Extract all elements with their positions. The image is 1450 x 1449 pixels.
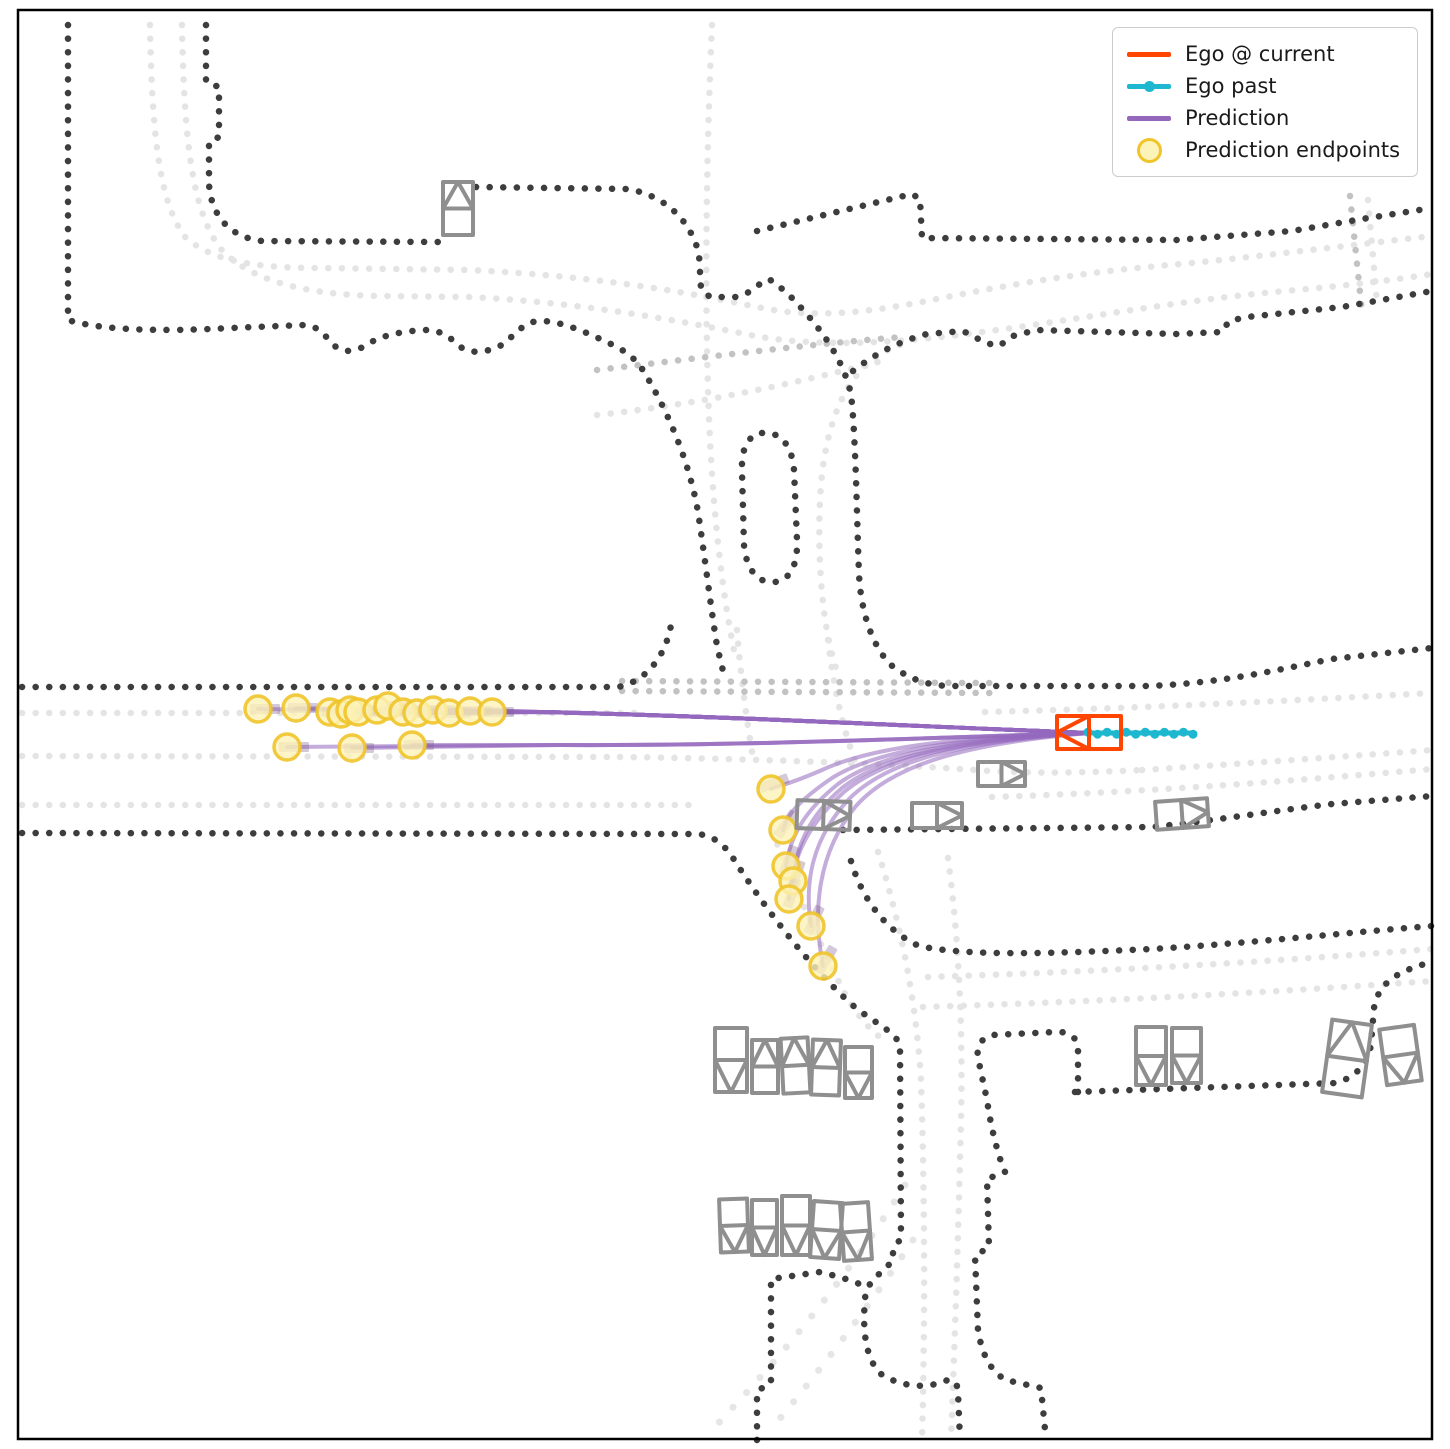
- vehicle-glyph: [811, 1040, 841, 1096]
- vehicle-heading-icon: [842, 1231, 872, 1261]
- road-lane-line: [706, 25, 736, 660]
- ego-past-dot: [1189, 730, 1198, 739]
- prediction-endpoint: [810, 953, 836, 979]
- ego-past-dot: [1141, 728, 1150, 737]
- vehicle-glyph: [781, 1037, 811, 1093]
- vehicle-glyph: [840, 1202, 872, 1261]
- vehicle-glyph: [719, 1199, 749, 1253]
- ego-past-dot: [1169, 730, 1178, 739]
- legend-item-prediction-endpoints: Prediction endpoints: [1127, 134, 1403, 166]
- ego-past-dot: [1179, 728, 1188, 737]
- prediction-endpoint: [245, 696, 271, 722]
- vehicle-heading-icon: [937, 803, 962, 828]
- prediction-path: [818, 733, 1090, 966]
- vehicle-glyph: [810, 1201, 843, 1259]
- prediction-swatch-icon: [1127, 116, 1171, 121]
- road-boundary: [853, 291, 1432, 371]
- road-guide-line: [1350, 196, 1362, 312]
- vehicle-heading-icon: [752, 1040, 778, 1067]
- prediction-endpoint: [798, 913, 824, 939]
- road-boundary: [22, 625, 671, 687]
- ego-past-dot: [1093, 730, 1102, 739]
- vehicle-glyph: [845, 1047, 872, 1098]
- road-guide-line: [622, 681, 990, 683]
- vehicle-heading-icon: [781, 1037, 809, 1066]
- vehicle-glyph: [443, 182, 473, 235]
- prediction-endpoint: [283, 695, 309, 721]
- vehicle-heading-icon: [1172, 1056, 1201, 1084]
- vehicle-glyph: [1155, 798, 1209, 830]
- prediction-endpoint: [399, 732, 425, 758]
- legend-item-ego-past: Ego past: [1127, 70, 1403, 102]
- vehicle-glyph: [978, 762, 1025, 786]
- road-boundaries: [22, 25, 1432, 1440]
- figure-canvas: Ego @ current Ego past Prediction Predic…: [0, 0, 1450, 1449]
- trajectory-map: [0, 0, 1450, 1449]
- vehicle-glyph: [752, 1040, 778, 1093]
- road-guide-line: [622, 691, 990, 693]
- vehicle-heading-icon: [720, 1225, 749, 1252]
- road-boundary: [1075, 962, 1432, 1092]
- vehicle-heading-icon: [715, 1060, 747, 1092]
- ego-past-dot: [1103, 728, 1112, 737]
- road-boundary: [975, 1032, 1078, 1440]
- road-lane-line: [923, 981, 1432, 1007]
- legend-label: Prediction: [1185, 106, 1289, 130]
- legend: Ego @ current Ego past Prediction Predic…: [1112, 27, 1418, 177]
- legend-label: Ego @ current: [1185, 42, 1335, 66]
- prediction-endpoints-swatch-icon: [1127, 138, 1171, 163]
- ego-past-dot: [1160, 728, 1169, 737]
- prediction-endpoint: [776, 886, 802, 912]
- prediction-endpoint: [274, 734, 300, 760]
- road-boundary: [476, 187, 1432, 686]
- road-lane-line: [22, 756, 618, 757]
- vehicle-glyph: [1322, 1020, 1372, 1098]
- vehicle-glyph: [752, 1200, 777, 1255]
- ego-past-swatch-icon: [1127, 84, 1171, 89]
- vehicle-heading-icon: [443, 182, 473, 209]
- road-lane-line: [828, 640, 859, 770]
- vehicle-heading-icon: [752, 1228, 777, 1256]
- vehicle-glyph: [715, 1028, 747, 1092]
- vehicle-heading-icon: [782, 1226, 810, 1256]
- other-vehicles: [443, 182, 1422, 1261]
- road-lane-line: [928, 949, 1432, 977]
- road-boundary: [206, 25, 441, 242]
- road-boundary: [742, 433, 797, 582]
- ego-past-trajectory: [1084, 728, 1198, 739]
- road-lane-line: [948, 858, 961, 1440]
- prediction-endpoint: [479, 699, 505, 725]
- vehicle-glyph: [782, 1196, 810, 1255]
- prediction-endpoint: [758, 776, 784, 802]
- vehicle-glyph: [1136, 1027, 1166, 1085]
- legend-item-ego-current: Ego @ current: [1127, 38, 1403, 70]
- vehicle-heading-icon: [810, 1229, 841, 1259]
- road-guide-line: [597, 337, 902, 370]
- legend-label: Ego past: [1185, 74, 1277, 98]
- ego-current-swatch-icon: [1127, 52, 1171, 57]
- legend-label: Prediction endpoints: [1185, 138, 1400, 162]
- road-boundary: [757, 194, 1432, 240]
- vehicle-glyph: [1379, 1025, 1421, 1085]
- road-boundary: [757, 1272, 866, 1440]
- road-lane-line: [985, 693, 1432, 712]
- prediction-endpoint: [339, 735, 365, 761]
- vehicle-glyph: [912, 803, 962, 828]
- road-boundary: [68, 25, 723, 671]
- ego-past-dot: [1150, 730, 1159, 739]
- road-boundary: [851, 861, 1432, 953]
- vehicle-heading-icon: [1136, 1056, 1166, 1085]
- ego-past-dot: [1122, 728, 1131, 737]
- vehicle-heading-icon: [812, 1040, 841, 1068]
- vehicle-glyph: [1172, 1028, 1201, 1083]
- legend-item-prediction: Prediction: [1127, 102, 1403, 134]
- vehicle-heading-icon: [845, 1073, 872, 1099]
- road-lane-line: [1142, 750, 1432, 770]
- prediction-endpoint: [770, 817, 796, 843]
- road-access-line: [773, 1240, 913, 1427]
- road-lane-line: [819, 345, 900, 668]
- road-lane-line: [1368, 200, 1377, 302]
- ego-past-dot: [1131, 730, 1140, 739]
